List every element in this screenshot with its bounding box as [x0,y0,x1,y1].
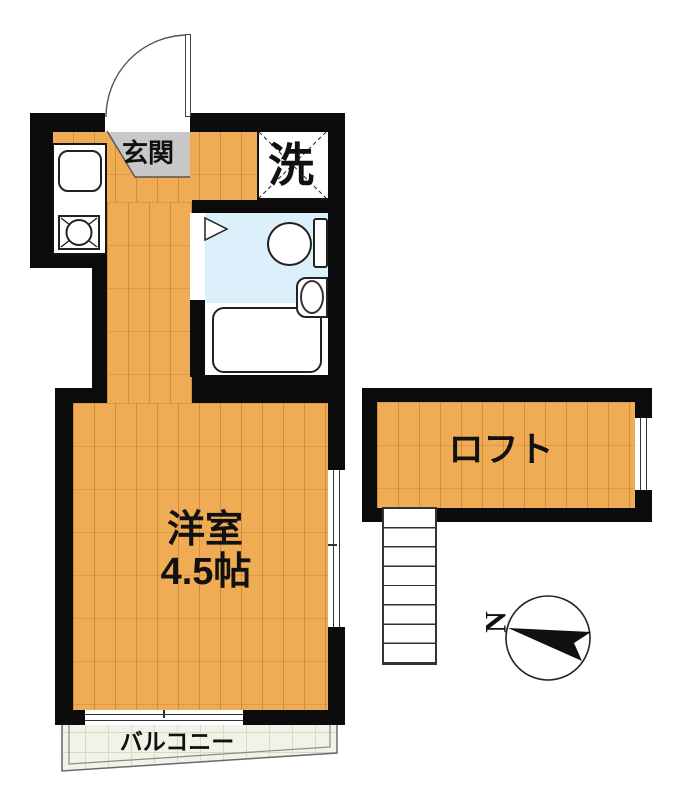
entrance-label: 玄関 [122,140,174,166]
bathroom-door-opening [190,213,205,303]
wall-corridor-left [92,268,107,403]
wall-bathroom-left [190,300,205,377]
north-label: N [480,611,513,633]
balcony-label: バルコニー [120,731,235,754]
wall-mainroom-left [55,388,73,725]
wall-under-counter [30,255,107,268]
window-main-bottom [85,710,243,725]
entrance-door-opening [105,113,190,132]
stairs-to-loft [382,507,437,665]
wall-bathroom-top [192,200,328,213]
wall-bathroom-bottom [192,375,328,403]
entrance-door-leaf [185,34,191,117]
floor-plan: N 玄関 洗 洋室 4.5帖 ロフト バルコニー [0,0,679,800]
window-main-right [328,470,345,627]
kitchen-sink [58,150,102,192]
laundry-label: 洗 [268,142,314,188]
corridor-floor [107,202,192,403]
washbasin-bowl [300,280,324,314]
toilet-tank [313,218,328,268]
wall-right [328,113,345,725]
north-arrow [508,628,591,661]
toilet-bowl [267,222,312,266]
compass: N [480,596,592,680]
wall-left-upper [30,113,53,268]
main-room-size-label: 4.5帖 [161,553,252,591]
loft-label: ロフト [448,433,553,468]
window-loft-right [635,418,652,490]
main-room-label: 洋室 [167,511,243,549]
